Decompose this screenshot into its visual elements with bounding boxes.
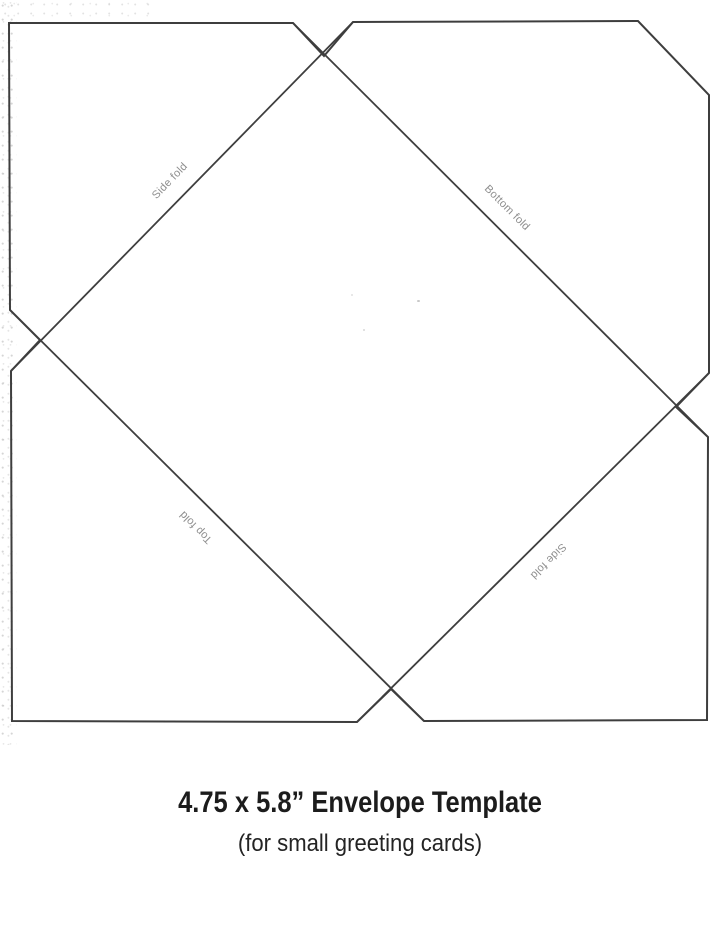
envelope-cut-outline bbox=[9, 21, 709, 722]
template-title: 4.75 x 5.8” Envelope Template bbox=[54, 786, 666, 820]
fold-line-side-top-left bbox=[11, 22, 353, 371]
fold-line-bottom bbox=[293, 23, 708, 437]
scanned-template-page: Side fold Bottom fold Top fold Side fold… bbox=[0, 0, 720, 931]
template-subtitle: (for small greeting cards) bbox=[29, 830, 691, 858]
fold-line-top bbox=[10, 310, 424, 721]
fold-line-side-bottom-right bbox=[357, 373, 709, 722]
envelope-template-diagram bbox=[0, 0, 720, 760]
